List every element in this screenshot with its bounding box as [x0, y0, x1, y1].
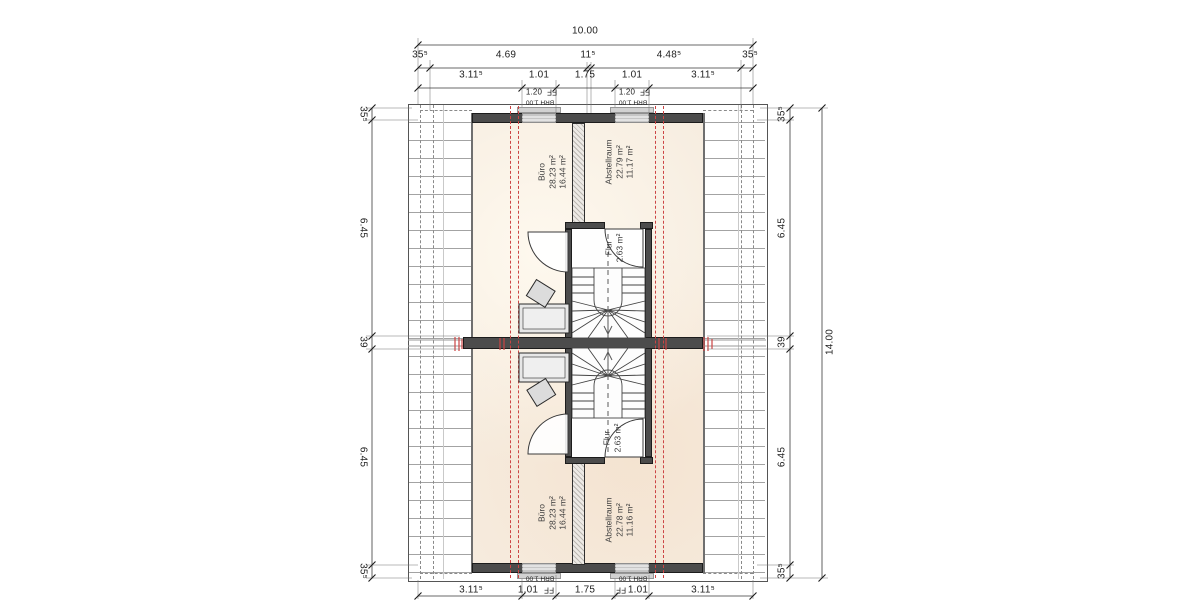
dim: 4.69: [496, 50, 516, 61]
room-area-total: 28.23 m²: [547, 155, 558, 189]
room-name: Flur: [604, 241, 615, 256]
room-area-total: 22.78 m²: [614, 503, 625, 537]
room-area-living: 11.17 m²: [624, 146, 635, 179]
dim: 4.48⁵: [657, 50, 682, 61]
dim: 3.11⁵: [691, 585, 715, 596]
dim: 3.11⁵: [691, 70, 715, 81]
chair-bottom: [527, 379, 556, 407]
dim: 1.01: [622, 70, 642, 81]
dim: 1.75: [575, 70, 595, 81]
window-width-label: 1.20: [526, 88, 542, 97]
door-buero-bottom: [528, 414, 568, 454]
window-sill-label: BRH 1.00: [526, 99, 554, 106]
dim: 1.01: [518, 585, 538, 596]
window-ff-label: FF: [544, 586, 554, 595]
room-label-buero-top: Büro 28.23 m² 16.44 m²: [536, 155, 568, 189]
window-width-label: 1.20: [619, 88, 635, 97]
dim-total-width: 10.00: [572, 26, 598, 37]
room-label-abstellraum-bottom: Abstellraum 22.78 m² 11.16 m²: [603, 498, 635, 543]
window-sill-label: BRH 1.00: [619, 575, 647, 582]
dim: 11⁵: [580, 50, 595, 61]
room-label-flur-top: Flur 2.63 m²: [604, 234, 625, 263]
dim: 39: [777, 336, 788, 348]
dim-total-depth: 14.00: [825, 329, 836, 355]
room-area: 2.63 m²: [614, 234, 625, 263]
room-label-abstellraum-top: Abstellraum 22.79 m² 11.17 m²: [603, 140, 635, 185]
room-name: Büro: [536, 504, 547, 522]
dim: 35⁵: [742, 50, 758, 61]
room-area: 2.63 m²: [612, 424, 623, 453]
dim: 35⁵: [412, 50, 428, 61]
chair-top: [526, 280, 555, 308]
stair-walk-lines: [604, 234, 612, 452]
window-ff-label: FF: [616, 586, 626, 595]
dim: 3.11⁵: [459, 585, 483, 596]
window-sill-label: BRH 1.00: [526, 575, 554, 582]
room-area-living: 16.44 m²: [557, 496, 568, 530]
room-area-total: 28.23 m²: [547, 496, 558, 530]
dim: 6.45: [777, 218, 788, 238]
window-sill-label: BRH 1.00: [619, 99, 647, 106]
dim: 6.45: [358, 218, 369, 238]
dim: 35⁵: [358, 563, 369, 579]
dim: 6.45: [358, 447, 369, 467]
door-swings: [528, 229, 643, 457]
dim: 6.45: [777, 447, 788, 467]
plan-graphics: [0, 0, 1200, 600]
room-name: Abstellraum: [603, 140, 614, 185]
dim: 1.01: [529, 70, 549, 81]
dim: 1.01: [628, 585, 648, 596]
room-area-living: 16.44 m²: [557, 155, 568, 189]
room-label-flur-bottom: Flur 2.63 m²: [602, 424, 623, 453]
window-ff-label: FF: [547, 88, 557, 97]
room-name: Büro: [536, 163, 547, 181]
window-ff-label: FF: [640, 88, 650, 97]
dim: 35⁵: [777, 563, 788, 579]
room-name: Abstellraum: [603, 498, 614, 543]
dim: 35⁵: [777, 106, 788, 122]
dim: 39: [358, 336, 369, 348]
door-buero-top: [528, 232, 568, 272]
dim: 3.11⁵: [459, 70, 483, 81]
furniture: [519, 280, 569, 407]
dim: 35⁵: [358, 106, 369, 122]
floor-plan-canvas: Büro 28.23 m² 16.44 m² Abstellraum 22.79…: [0, 0, 1200, 600]
room-label-buero-bottom: Büro 28.23 m² 16.44 m²: [536, 496, 568, 530]
dim: 1.75: [575, 585, 595, 596]
room-area-living: 11.16 m²: [624, 504, 635, 537]
room-name: Flur: [602, 431, 613, 446]
room-area-total: 22.79 m²: [614, 145, 625, 179]
